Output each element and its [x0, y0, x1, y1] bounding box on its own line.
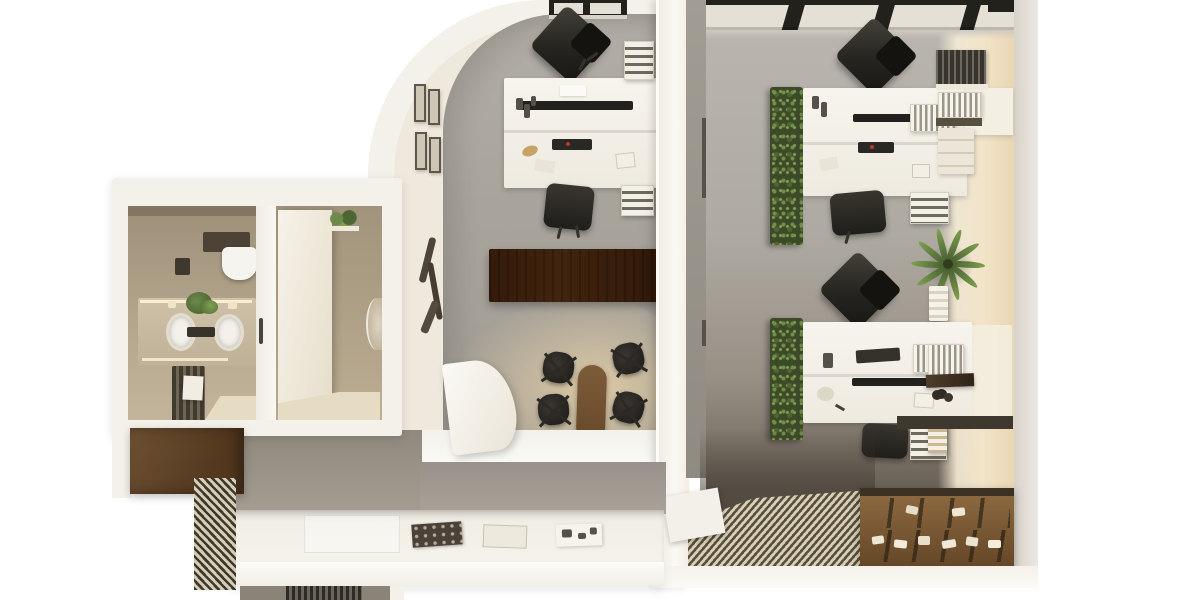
picture-frame — [415, 132, 427, 170]
faucet-bar — [187, 327, 215, 337]
outer-wall-right — [1014, 0, 1038, 586]
shelf-item — [988, 540, 1001, 548]
desk-bottle — [821, 102, 827, 117]
magazine-print — [590, 527, 597, 534]
recessed-tray — [304, 515, 400, 553]
task-chair-a-bottom — [829, 190, 886, 237]
wood-credenza — [489, 249, 669, 302]
desk-bottle — [516, 98, 523, 110]
soap-dispenser — [175, 258, 190, 275]
round-wall-mirror — [366, 298, 382, 350]
door-handle — [259, 318, 263, 344]
picture-frame — [429, 137, 441, 173]
reception-counter-top — [232, 510, 664, 566]
paper-sheet — [560, 85, 586, 96]
shelf-item — [965, 536, 978, 547]
desk-extension-b — [972, 325, 1012, 425]
magazine-print — [578, 533, 586, 539]
green-plant-wall-top — [770, 87, 803, 245]
towel — [182, 375, 203, 400]
restroom-right-room — [276, 206, 382, 420]
white-rug — [662, 487, 725, 542]
magazine-dark — [411, 521, 462, 547]
sink-round — [214, 314, 244, 351]
skylight-band — [706, 0, 1014, 30]
desk-bottle — [531, 96, 536, 106]
desk-bottle — [812, 96, 819, 109]
meeting-table — [576, 365, 608, 440]
soap-bottle — [168, 301, 176, 308]
keyboard — [552, 139, 592, 150]
wall-shadow — [128, 206, 256, 216]
palm-stand — [929, 286, 948, 321]
counter-plant — [200, 300, 218, 314]
wall-hung-toilet — [222, 247, 256, 280]
binder-shelf-bottom — [621, 185, 654, 216]
magazine-white — [556, 523, 603, 547]
window-pane — [590, 3, 621, 14]
shelf-item — [872, 535, 885, 545]
room-slats — [286, 586, 362, 600]
wall-shelf-boxes — [938, 128, 974, 174]
soap-bottle — [228, 302, 237, 309]
shelf-item — [918, 536, 930, 545]
shelf-row — [864, 498, 1010, 528]
restroom-divider-wall — [256, 206, 276, 420]
paper-scraps — [534, 159, 555, 174]
keyboard-red-dot — [870, 145, 874, 149]
dark-slat-room — [240, 586, 404, 600]
meeting-chair — [537, 393, 571, 427]
task-chair-bottom-middle — [543, 183, 595, 232]
desk-bottle — [524, 104, 530, 118]
crumpled-paper — [817, 387, 834, 401]
binder-shelf-a — [910, 192, 949, 224]
magazine-print — [562, 529, 572, 537]
window-corner-frame — [988, 0, 1014, 12]
diagonal-slat-screen — [194, 478, 236, 590]
striped-box — [928, 425, 947, 453]
decor-sphere — [944, 393, 953, 402]
binder-shelf-top — [624, 41, 654, 80]
wall-shelf-binders — [938, 92, 982, 118]
dark-wall-board — [926, 373, 974, 388]
dark-wall-ledge — [897, 416, 1013, 429]
notebook — [912, 164, 930, 178]
floorplan-render — [0, 0, 1200, 600]
keyboard-a — [858, 142, 894, 153]
wall-shelf-board-dark — [936, 118, 982, 126]
wood-storage-shelf — [860, 488, 1014, 568]
wall-shelf-dark-books — [936, 50, 986, 84]
wall-binders-lower — [928, 344, 964, 376]
palm-center — [943, 259, 953, 269]
divider-wall-gray — [686, 0, 706, 478]
picture-frame — [414, 84, 426, 122]
wall-shelf-board — [936, 84, 988, 90]
shelf-item — [952, 507, 966, 516]
palm-plant — [912, 228, 984, 300]
plant-shelf — [327, 226, 359, 231]
corridor-wall-mid — [420, 462, 666, 514]
notebook — [615, 152, 635, 169]
shelf-item — [894, 539, 908, 548]
bottom-wall-right — [652, 566, 1038, 588]
green-plant-wall-bottom — [770, 318, 803, 440]
corridor-wall-left — [236, 430, 422, 514]
desk-bottle — [823, 353, 833, 368]
magazine-light — [483, 524, 528, 549]
floor-wedge — [205, 396, 256, 420]
reception-counter-front — [232, 562, 664, 586]
decor-sphere — [932, 390, 942, 400]
restroom-left-room — [128, 206, 256, 420]
picture-frame — [428, 89, 440, 125]
mirror-light-strip — [142, 358, 228, 361]
keyboard-red-dot — [566, 142, 570, 146]
room-post — [390, 586, 404, 600]
outer-wall-left-lower — [112, 436, 132, 498]
open-door-leaf — [278, 210, 332, 416]
